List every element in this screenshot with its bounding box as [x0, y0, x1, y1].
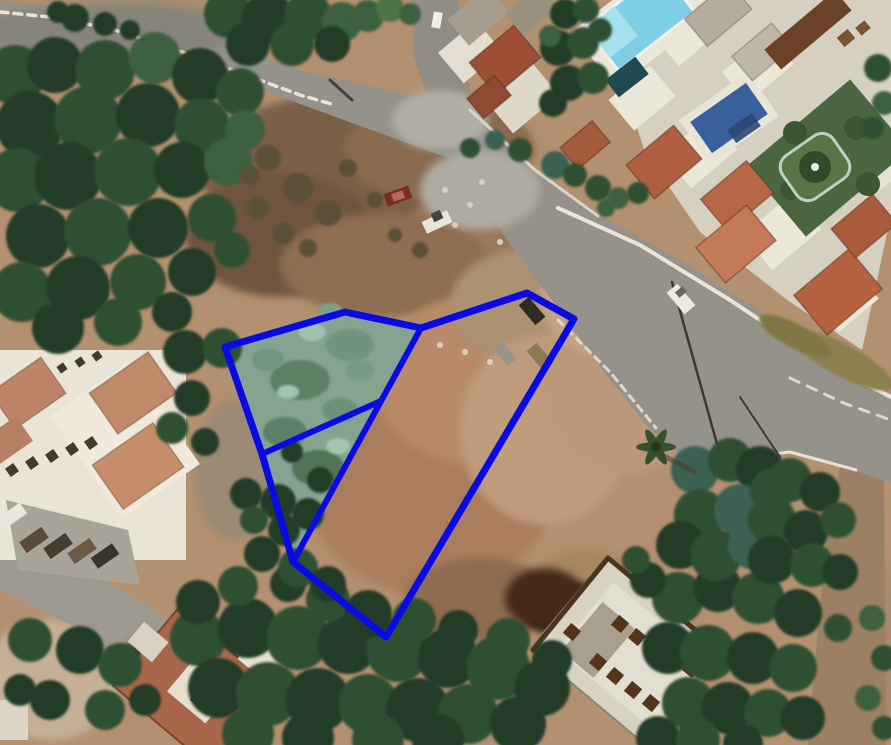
scrub-bushes-tree: [367, 192, 383, 208]
bushes-tree: [539, 25, 561, 47]
bushes-tree: [627, 182, 649, 204]
rock: [467, 202, 473, 208]
tree-mass-right-tree: [769, 644, 817, 692]
bushes-tree: [508, 138, 532, 162]
tree-mass-upper-left-tree: [94, 298, 142, 346]
scrub-bushes-tree: [339, 159, 357, 177]
tree-mass-upper-left-tree: [27, 37, 83, 93]
bushes-tree: [597, 199, 615, 217]
trees-bottom-left-tree: [4, 674, 36, 706]
tree-mass-right-tree: [859, 605, 885, 631]
scrub-bushes-tree: [247, 197, 269, 219]
scrub-bushes-tree: [315, 200, 341, 226]
scrub-bushes-tree: [388, 228, 402, 242]
tree-mass-bottom-tree: [176, 580, 220, 624]
trees-in-parcel-tree: [230, 478, 262, 510]
green-texture: [346, 360, 374, 380]
tree-mass-right-tree: [774, 589, 822, 637]
bushes-tree: [862, 117, 884, 139]
green-texture: [252, 349, 284, 371]
tree-mass-bottom-tree: [218, 566, 258, 606]
tree-mass-bottom-tree: [438, 610, 478, 650]
green-texture: [326, 438, 350, 454]
trees-bottom-left-tree: [129, 684, 161, 716]
tree-mass-upper-left-tree: [152, 292, 192, 332]
rock: [442, 187, 448, 193]
tree-mass-left-tree: [163, 330, 207, 374]
tree-mass-upper-left-tree: [168, 248, 216, 296]
tree-mass-left-tree: [156, 412, 188, 444]
bushes-tree: [460, 138, 480, 158]
garden-shrub: [856, 172, 880, 196]
tree-mass-top-tree: [314, 26, 350, 62]
tree-mass-top-tree: [226, 22, 270, 66]
tree-mass-upper-left-tree: [6, 204, 70, 268]
tree-mass-upper-left-tree: [128, 198, 188, 258]
tree-mass-left-tree: [174, 380, 210, 416]
tree-shadows-on-road-tree: [93, 12, 117, 36]
green-texture: [277, 385, 299, 399]
tree-mass-bottom-tree: [344, 590, 392, 638]
rock: [487, 359, 493, 365]
trees-in-parcel-tree: [307, 467, 333, 493]
tree-mass-top-tree: [399, 3, 421, 25]
tree-mass-right-tree: [748, 536, 796, 584]
tree-mass-bottom-tree: [532, 640, 572, 680]
tree-mass-right-tree: [822, 554, 858, 590]
tree-mass-right-tree: [820, 502, 856, 538]
bushes-tree: [539, 89, 567, 117]
bushes-tree: [864, 54, 891, 82]
rock: [462, 349, 468, 355]
scrub-bushes-tree: [299, 239, 317, 257]
bushes-tree: [563, 163, 587, 187]
scrub-bushes-tree: [412, 242, 428, 258]
fountain-dot: [811, 163, 819, 171]
green-texture: [326, 329, 374, 361]
tree-mass-top-tree: [270, 22, 314, 66]
tree-mass-upper-left-tree: [64, 198, 132, 266]
trees-bottom-left-tree: [98, 643, 142, 687]
wall-corner: [0, 700, 28, 740]
tree-mass-right-tree: [622, 546, 650, 574]
tree-mass-upper-left-tree: [214, 232, 250, 268]
satellite-map: [0, 0, 891, 745]
rock: [437, 342, 443, 348]
tree-mass-right-tree: [855, 685, 881, 711]
trees-bottom-left-tree: [30, 680, 70, 720]
screenshot-root: [0, 0, 891, 745]
tree-mass-upper-left-tree: [154, 142, 210, 198]
scrub-bushes-tree: [255, 145, 281, 171]
rock: [497, 239, 503, 245]
tree-mass-upper-left-tree: [32, 302, 84, 354]
bushes-tree: [485, 130, 505, 150]
scrub-bushes-tree: [283, 173, 313, 203]
bushes-tree: [577, 62, 609, 94]
rock: [452, 222, 458, 228]
garden-shrub: [783, 121, 807, 145]
tree-mass-upper-left-tree: [94, 138, 162, 206]
tree-mass-left-tree: [191, 428, 219, 456]
scrub-bushes-tree: [240, 165, 260, 185]
rock: [479, 179, 485, 185]
tree-mass-upper-left-tree: [116, 83, 180, 147]
trees-bottom-left-tree: [85, 690, 125, 730]
trees-bottom-left-tree: [8, 618, 52, 662]
tree-shadows-on-road-tree: [120, 20, 140, 40]
trees-bottom-left-tree: [56, 626, 104, 674]
palm-tree: [651, 442, 661, 452]
tree-mass-right-tree: [824, 614, 852, 642]
tree-mass-bottom-tree: [486, 618, 530, 662]
tree-mass-right-tree: [781, 696, 825, 740]
scrub-bushes-tree: [272, 222, 294, 244]
tree-shadows-on-road-tree: [47, 1, 69, 23]
tree-mass-bottom-tree: [240, 506, 268, 534]
